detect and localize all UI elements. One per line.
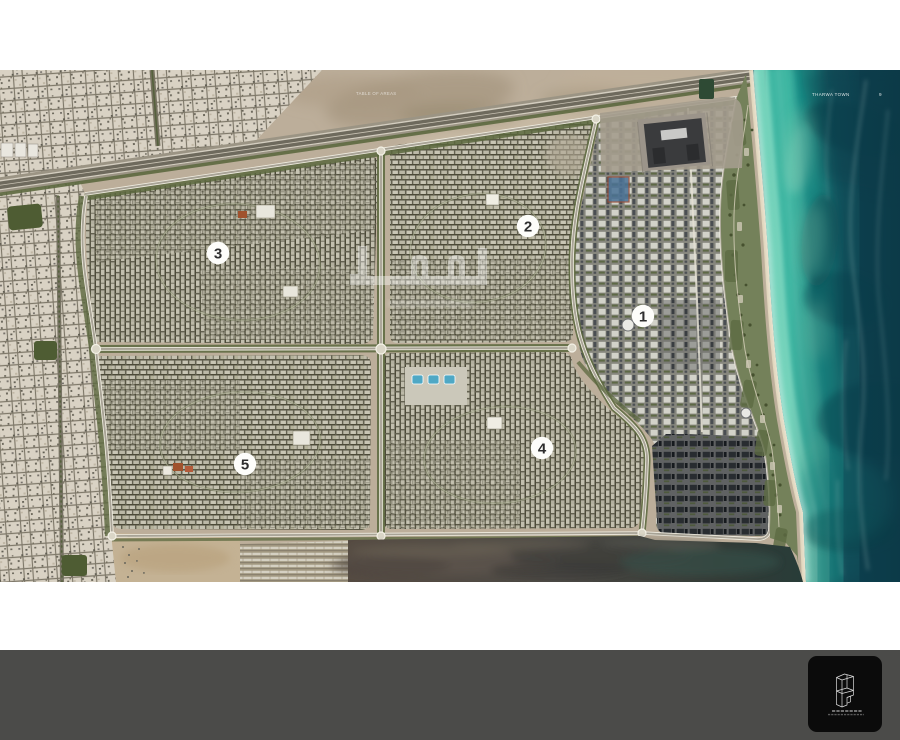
svg-text:9: 9	[879, 92, 882, 97]
svg-text:1: 1	[639, 309, 647, 326]
svg-text:TABLE OF AREAS: TABLE OF AREAS	[356, 91, 396, 96]
svg-text:3: 3	[214, 246, 222, 263]
svg-text:4: 4	[538, 441, 547, 458]
svg-text:5: 5	[241, 457, 249, 474]
svg-text:THARWA TOWN: THARWA TOWN	[812, 92, 850, 97]
svg-text:2: 2	[524, 219, 532, 236]
